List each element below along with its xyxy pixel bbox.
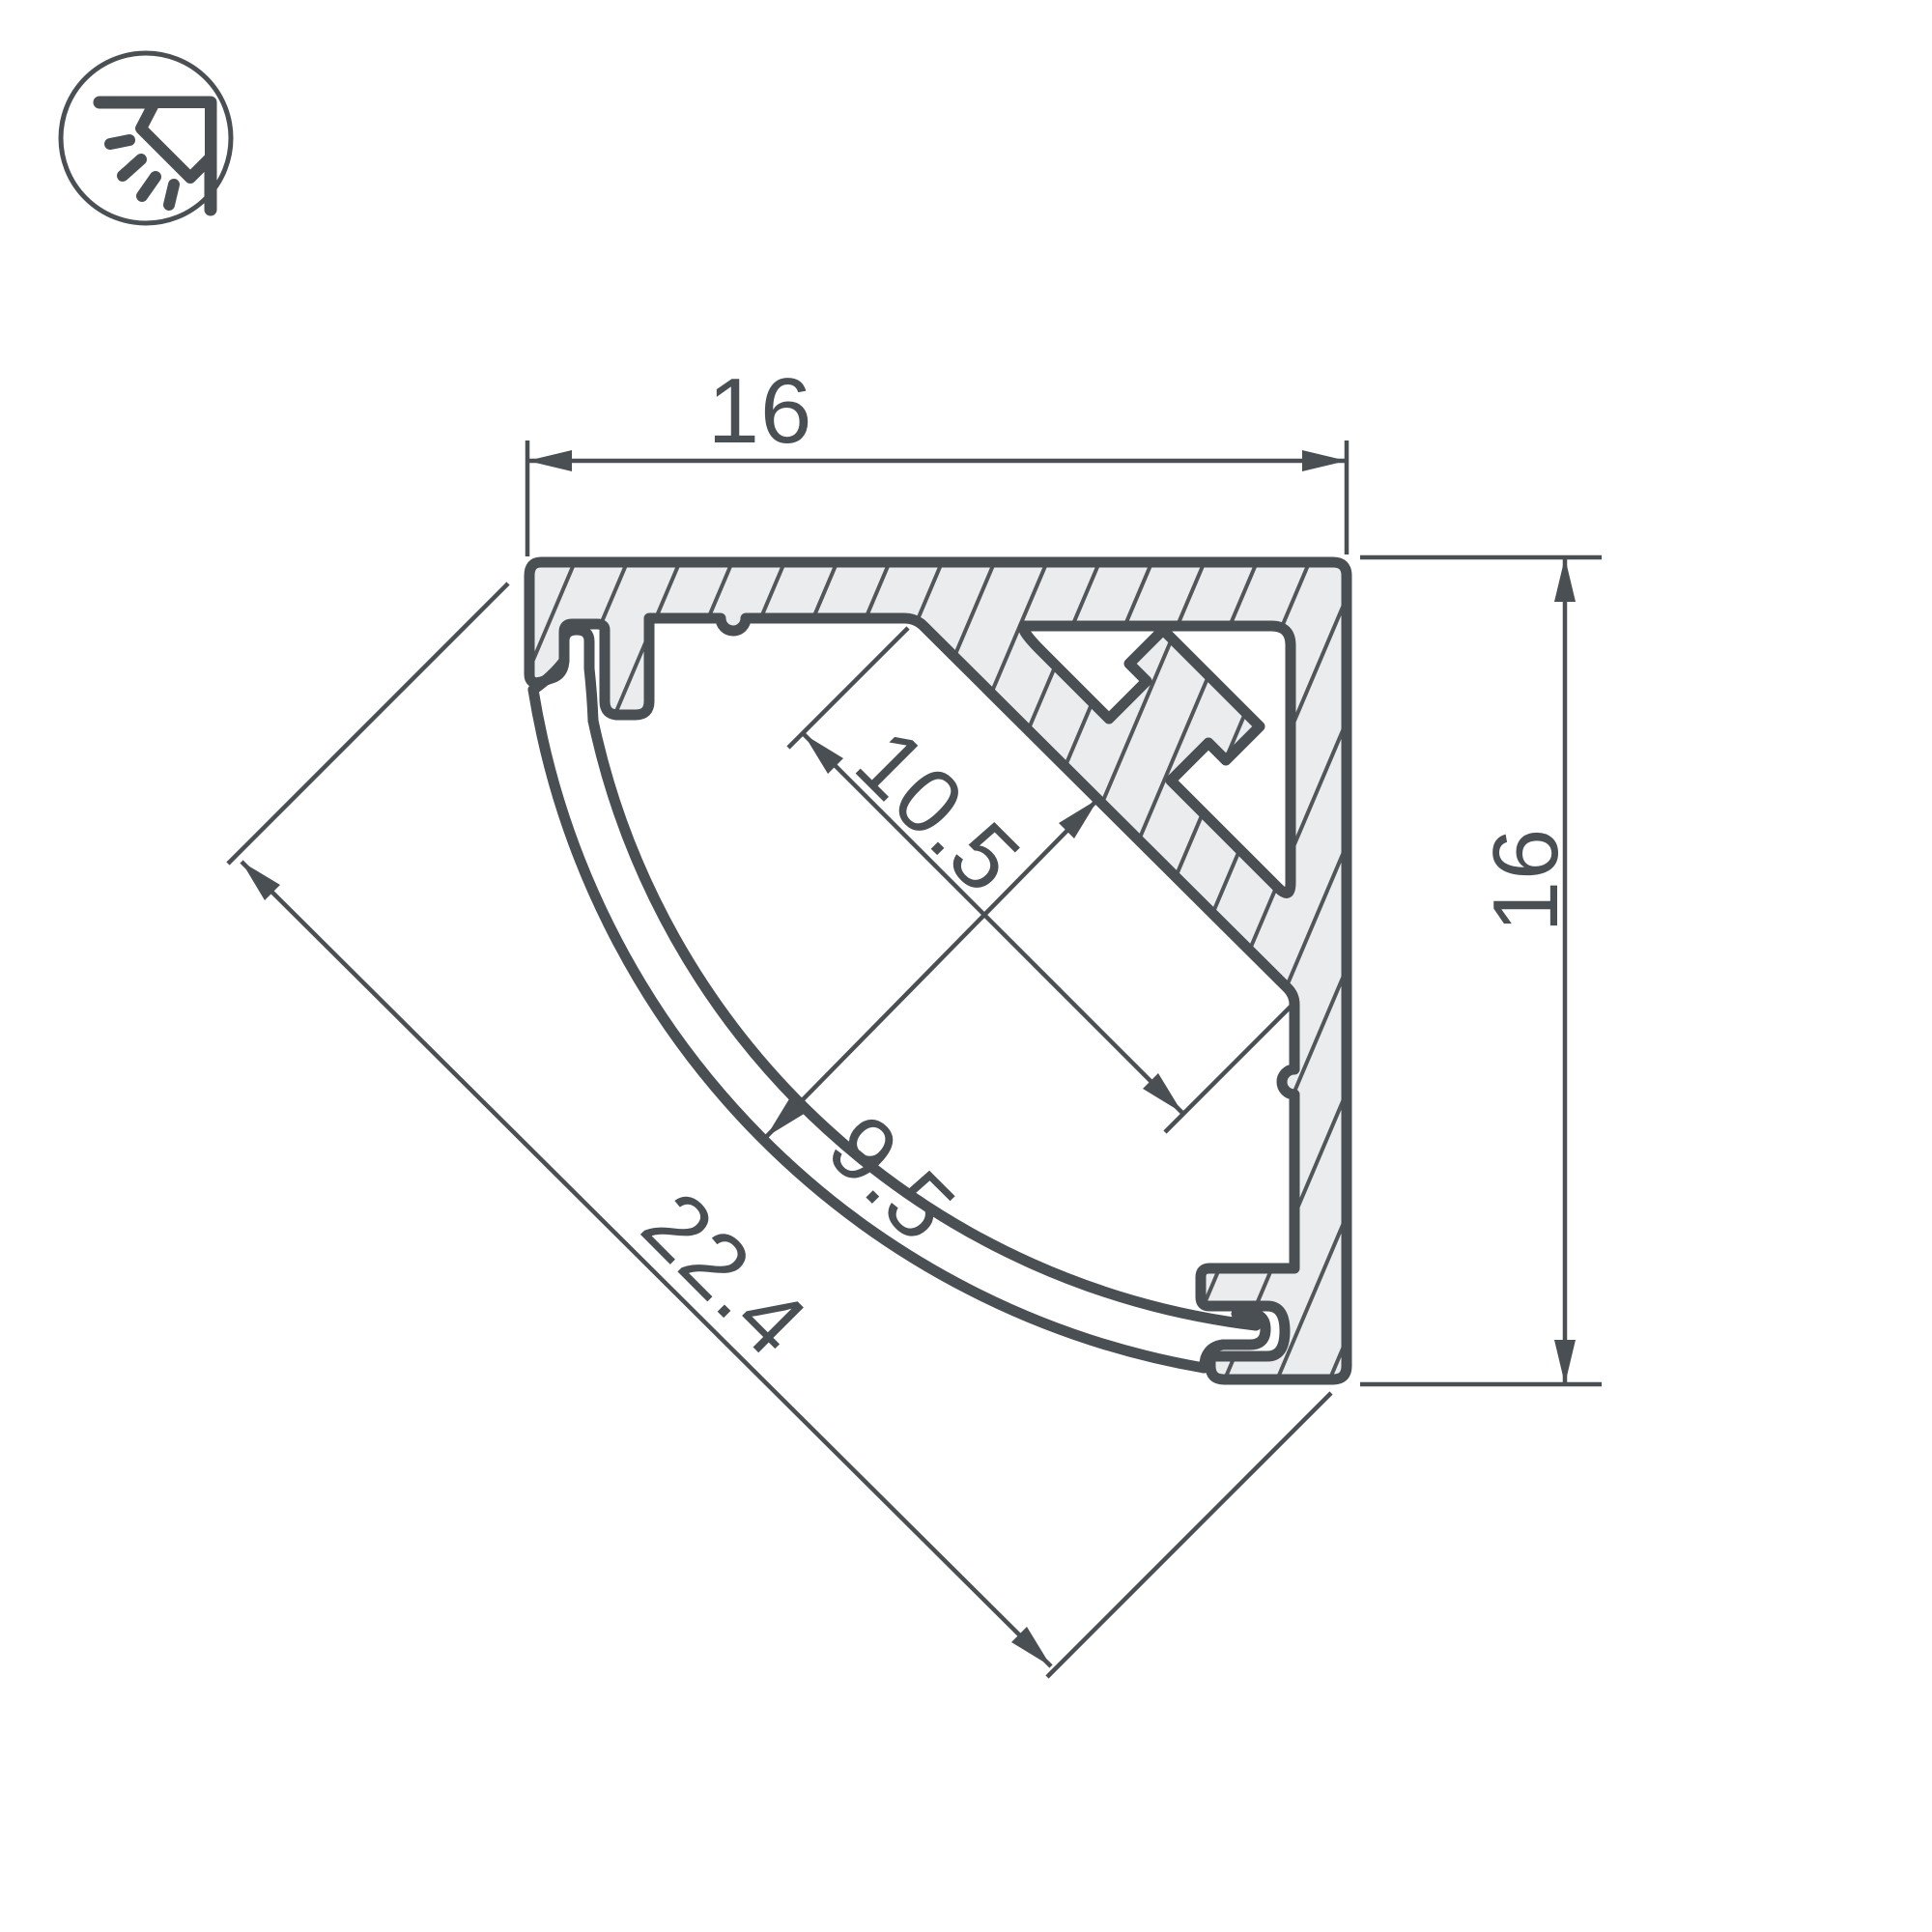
label-top-width: 16: [708, 359, 813, 463]
arrow-up-icon: [1554, 557, 1576, 602]
label-channel-depth: 9.5: [809, 1095, 975, 1262]
label-right-height: 16: [1474, 828, 1577, 933]
dimension-right-height: [1360, 557, 1602, 1384]
label-diagonal-width: 22.4: [623, 1173, 827, 1377]
label-platform-width: 10.5: [837, 710, 1040, 914]
arrow-left-icon: [527, 450, 572, 471]
technical-drawing-page: 16 16 10.5 9.5 22.4: [0, 0, 1932, 1932]
arrow-down-icon: [1554, 1340, 1576, 1384]
technical-drawing: 16 16 10.5 9.5 22.4: [0, 0, 1932, 1932]
dimension-labels: 16 16 10.5 9.5 22.4: [623, 359, 1577, 1376]
dimension-top-width: [527, 440, 1347, 556]
corner-light-icon: [61, 53, 231, 223]
icon-lamp-body: [141, 102, 211, 178]
arrow-right-icon: [1302, 450, 1347, 471]
